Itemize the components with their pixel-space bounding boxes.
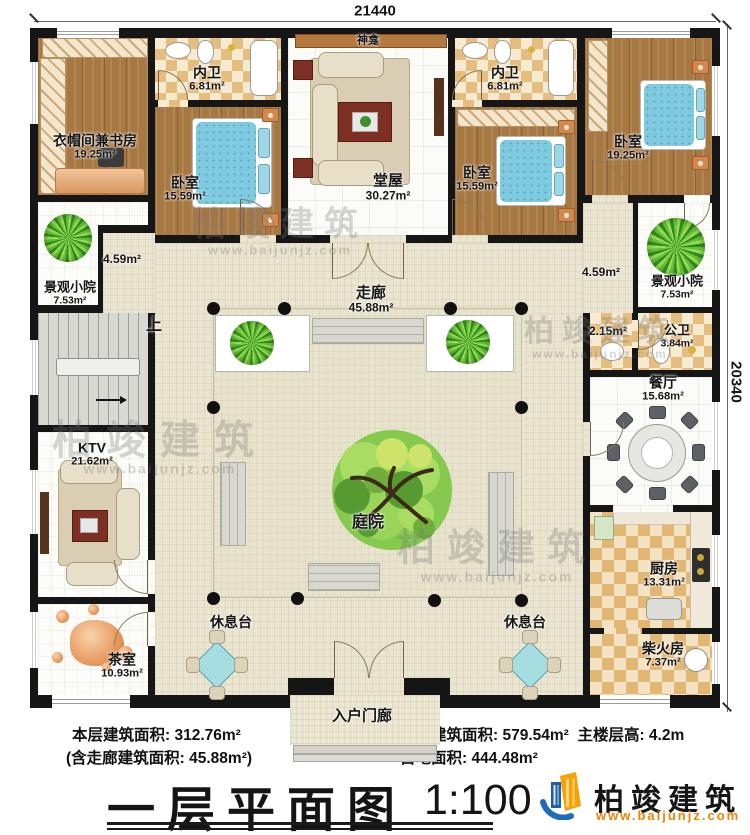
pillow [696, 88, 705, 112]
bed-mattress [500, 140, 552, 202]
label-cloak-study: 衣帽间兼书房19.25m² [53, 133, 137, 162]
logo-icon [538, 770, 590, 820]
column [515, 594, 528, 607]
chair [522, 630, 538, 644]
title-underline [107, 822, 493, 825]
corridor-area-text: (含走廊建筑面积: 45.88m²) [66, 746, 252, 768]
nightstand [692, 60, 709, 74]
stair-arrow-head [120, 396, 127, 404]
sofa [318, 52, 384, 78]
door-opening [240, 235, 276, 243]
column [515, 302, 528, 315]
pillow [554, 144, 564, 168]
label-courtyard: 庭院 [352, 514, 384, 532]
burner-icon [697, 554, 704, 561]
sofa [66, 562, 118, 586]
label-washroom-area: 2.15m² [589, 325, 627, 339]
shower-icon [228, 44, 235, 51]
shower-icon [528, 46, 535, 53]
door-opening [148, 560, 155, 594]
wardrobe-hatch [42, 38, 148, 58]
plant-icon [44, 214, 92, 262]
label-scenic-court-right: 景观小院7.53m² [651, 275, 703, 302]
window [712, 66, 720, 136]
wardrobe-hatch [588, 40, 608, 132]
logo-website: www.baijunjz.com [596, 808, 740, 823]
dimension-line-top [34, 21, 716, 22]
dining-table-center [641, 437, 673, 469]
door-opening [583, 422, 590, 456]
window [30, 62, 38, 124]
chair [522, 686, 538, 700]
porch-step [293, 745, 437, 754]
window [600, 695, 670, 708]
sofa [116, 488, 140, 560]
stone-decor [56, 610, 69, 623]
desk [55, 168, 145, 194]
bathtub-icon [250, 40, 278, 96]
column [207, 592, 220, 605]
bench [220, 462, 246, 546]
chair [547, 657, 561, 673]
column [278, 302, 291, 315]
sink-icon [462, 42, 488, 59]
bed-mattress [644, 84, 694, 146]
label-scenic-court-left: 景观小院7.53m² [44, 281, 96, 308]
column [291, 592, 304, 605]
label-tea-room: 茶室10.93m² [101, 652, 143, 681]
tv-cabinet [40, 492, 49, 554]
label-bedroom-left: 卧室15.59m² [164, 175, 206, 204]
building-area-text: 本栋建筑面积: 579.54m² 主楼层高: 4.2m [400, 723, 684, 745]
sofa [312, 84, 338, 166]
window [712, 535, 720, 587]
label-dining: 餐厅15.68m² [642, 375, 684, 404]
column [207, 302, 220, 315]
jar-icon [684, 648, 708, 672]
label-ktv: KTV21.62m² [71, 440, 113, 469]
label-stairs-up: 上 [146, 317, 162, 335]
burner-icon [697, 568, 704, 575]
bench [308, 563, 380, 591]
column [207, 401, 220, 414]
floor-plan-page: 21440 20340 [0, 0, 750, 835]
pillow [696, 116, 705, 140]
side-table [293, 60, 313, 80]
nightstand [558, 120, 575, 134]
nightstand [692, 156, 709, 170]
courtyard-tree-icon [322, 420, 462, 560]
label-corridor-left-area: 4.59m² [103, 253, 141, 267]
chair [499, 657, 513, 673]
dimension-top: 21440 [354, 2, 396, 19]
title-underline [107, 828, 493, 830]
plant-icon [446, 320, 490, 364]
label-corridor: 走廊45.88m² [349, 284, 394, 315]
corridor-left-strip [103, 232, 155, 313]
column [515, 401, 528, 414]
table-glass [80, 518, 98, 533]
window [57, 28, 119, 38]
chair [692, 444, 705, 461]
fridge [594, 516, 614, 540]
label-main-hall: 堂屋30.27m² [366, 172, 411, 203]
door-opening [684, 195, 710, 203]
scale-text: 1:100 [424, 776, 532, 825]
window [30, 470, 38, 534]
chair [209, 630, 225, 644]
pillow [554, 172, 564, 196]
chair [209, 686, 225, 700]
wall-segment [98, 230, 103, 313]
label-shrine: 神龛 [357, 35, 379, 48]
door-opening [452, 100, 482, 107]
window [30, 340, 38, 395]
toilet-icon [494, 40, 511, 64]
corridor-right-strip [583, 203, 633, 313]
label-corridor-right-area: 4.59m² [582, 266, 620, 280]
floor-area-text: 本层建筑面积: 312.76m² [72, 723, 241, 745]
label-firewood: 柴火房7.37m² [642, 641, 684, 670]
window [612, 28, 690, 38]
stair-rail [56, 358, 140, 376]
label-inner-bath-left: 内卫6.81m² [189, 65, 224, 94]
wall-segment [404, 678, 450, 695]
label-entry-porch: 入户门廊 [332, 707, 392, 724]
sink-icon [600, 342, 624, 361]
plant-icon [230, 321, 274, 365]
label-inner-bath-right: 内卫6.81m² [487, 65, 522, 94]
label-rest-platform-left: 休息台 [210, 614, 252, 630]
label-rest-platform-right: 休息台 [504, 614, 546, 630]
label-public-bath: 公卫3.84m² [661, 324, 694, 351]
column [428, 594, 441, 607]
window [712, 230, 720, 290]
door-opening [148, 612, 155, 646]
page-title: 一层平面图 [107, 770, 407, 835]
chair [649, 406, 666, 419]
wall-segment [98, 225, 155, 233]
chair [234, 657, 248, 673]
stone-decor [88, 604, 99, 615]
window [30, 612, 38, 668]
porch-step [293, 754, 437, 762]
bench [488, 472, 514, 576]
plant-icon [360, 116, 371, 127]
door-opening [592, 195, 628, 203]
chair [649, 487, 666, 500]
plant-icon [647, 218, 705, 276]
stone-decor [52, 652, 63, 663]
door-opening [158, 100, 188, 107]
sink-icon [165, 42, 191, 59]
window [712, 642, 720, 684]
label-kitchen: 厨房13.31m² [643, 561, 685, 590]
pillow [258, 128, 270, 158]
kitchen-counter [614, 512, 690, 525]
side-table [293, 158, 313, 178]
nightstand [262, 108, 279, 122]
tv-cabinet [434, 78, 444, 136]
label-bedroom-mid: 卧室15.59m² [456, 165, 498, 194]
bathtub-icon [548, 40, 574, 96]
door-opening [604, 628, 642, 634]
wall-segment [288, 678, 334, 695]
nightstand [558, 208, 575, 222]
toilet-icon [197, 40, 214, 64]
window [712, 402, 720, 470]
chair [186, 657, 200, 673]
window [52, 695, 130, 708]
door-opening [452, 235, 488, 243]
column [444, 302, 457, 315]
door-opening [330, 235, 406, 243]
pillow [258, 164, 270, 194]
bench [312, 318, 424, 344]
label-bedroom-right: 卧室19.25m² [607, 134, 649, 163]
dimension-right: 20340 [727, 361, 744, 403]
stair-arrow [96, 399, 122, 401]
kitchen-sink [646, 598, 682, 620]
